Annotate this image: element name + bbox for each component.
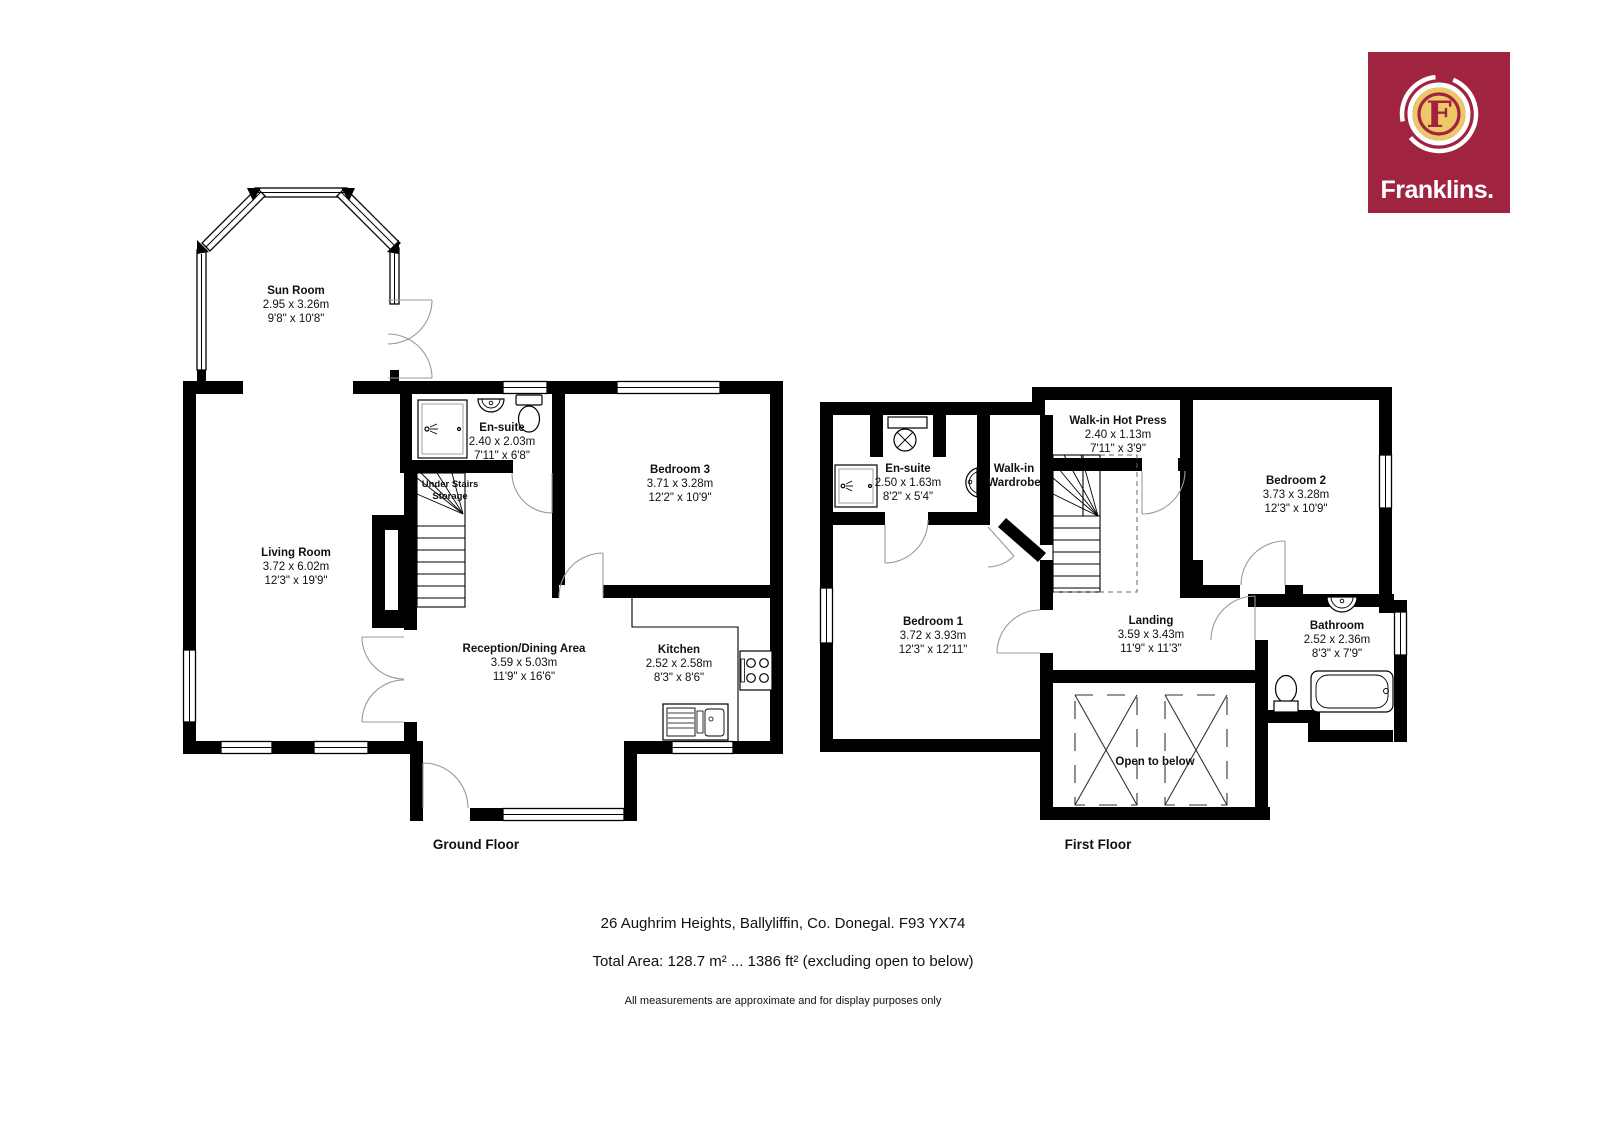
ensuite-door (512, 473, 552, 513)
sink-icon (478, 399, 504, 412)
room-label-hot-press: Walk-in Hot Press 2.40 x 1.13m 7'11" x 3… (1069, 414, 1166, 456)
open-to-below-symbols (1075, 695, 1227, 805)
room-label-living-room: Living Room 3.72 x 6.02m 12'3" x 19'9" (261, 546, 331, 588)
ground-floor-title: Ground Floor (433, 837, 519, 852)
living-room-double-doors (362, 637, 404, 722)
franklins-logo: F Franklins. (1368, 52, 1510, 213)
hot-press-door (1142, 471, 1185, 514)
floorplan-page: Sun Room 2.95 x 3.26m 9'8" x 10'8" En-su… (0, 0, 1600, 1146)
bath-icon (1311, 671, 1393, 712)
hob-icon (740, 651, 772, 690)
toilet-ff-icon (888, 417, 927, 451)
stair-void-dashed-line (1053, 455, 1137, 592)
first-floor-stairs (1053, 455, 1137, 592)
floorplan-drawing (0, 0, 1600, 1146)
shower-ff-icon (835, 465, 877, 507)
room-label-landing: Landing 3.59 x 3.43m 11'9" x 11'3" (1118, 614, 1184, 656)
room-label-understairs: Under Stairs Storage (422, 479, 479, 502)
total-area-line: Total Area: 128.7 m² ... 1386 ft² (exclu… (592, 953, 973, 970)
logo-brand-text: Franklins. (1368, 176, 1506, 205)
room-label-open-to-below: Open to below (1115, 755, 1194, 769)
disclaimer-line: All measurements are approximate and for… (625, 995, 942, 1007)
room-label-bathroom: Bathroom 2.52 x 2.36m 8'3" x 7'9" (1304, 619, 1370, 661)
wardrobe-diagonal-wall (998, 518, 1046, 562)
logo-monogram: F (1426, 94, 1452, 136)
room-label-ensuite-ff: En-suite 2.50 x 1.63m 8'2" x 5'4" (875, 462, 941, 504)
first-floor-title: First Floor (1065, 837, 1132, 852)
toilet-bathroom-icon (1274, 676, 1298, 713)
sun-room-french-doors (388, 300, 432, 378)
room-label-sun-room: Sun Room 2.95 x 3.26m 9'8" x 10'8" (263, 284, 329, 326)
room-label-bedroom3: Bedroom 3 3.71 x 3.28m 12'2" x 10'9" (647, 463, 713, 505)
room-label-bedroom2: Bedroom 2 3.73 x 3.28m 12'3" x 10'9" (1263, 474, 1329, 516)
sink-bathroom-icon (1327, 597, 1357, 612)
bedroom1-door (997, 610, 1040, 653)
room-label-reception: Reception/Dining Area 3.59 x 5.03m 11'9"… (463, 642, 586, 684)
room-label-bedroom1: Bedroom 1 3.72 x 3.93m 12'3" x 12'11" (899, 615, 968, 657)
kitchen-sink-icon (663, 704, 728, 740)
sun-room-bay-windows (197, 188, 400, 370)
ensuite-ff-door (885, 520, 928, 563)
bedroom3-door (559, 553, 603, 597)
room-label-kitchen: Kitchen 2.52 x 2.58m 8'3" x 8'6" (646, 643, 712, 685)
room-label-ensuite-gf: En-suite 2.40 x 2.03m 7'11" x 6'8" (469, 421, 535, 463)
sink-ff-icon (966, 468, 977, 497)
bedroom2-door (1241, 541, 1285, 585)
shower-icon (418, 400, 467, 458)
front-door (423, 763, 468, 808)
chimney-flue (385, 530, 398, 610)
address-line: 26 Aughrim Heights, Ballyliffin, Co. Don… (601, 915, 966, 932)
room-label-wardrobe: Walk-in Wardrobe (987, 462, 1040, 490)
